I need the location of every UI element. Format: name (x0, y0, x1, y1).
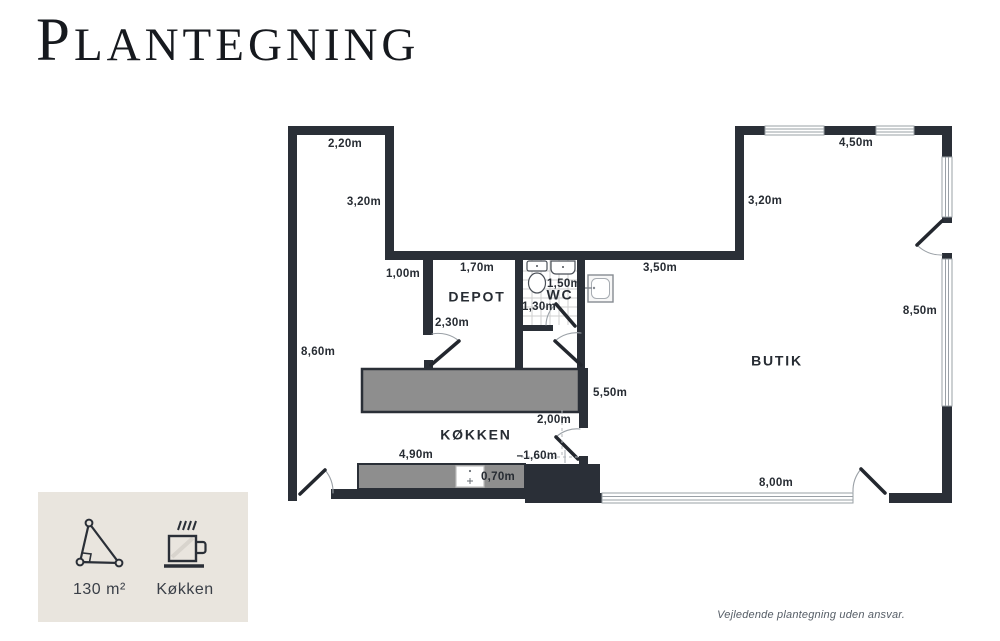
dimension-label: 4,50m (839, 137, 873, 149)
door-kitchen-butik (556, 429, 580, 459)
wall-left (288, 126, 297, 501)
doors (300, 221, 942, 494)
wall-depot-left (423, 260, 433, 335)
dimension-label: 5,50m (593, 387, 627, 399)
dimension-label: 2,20m (328, 138, 362, 150)
disclaimer-text: Vejledende plantegning uden ansvar. (717, 609, 905, 621)
dimension-label: 8,00m (759, 477, 793, 489)
window-bottom (602, 493, 853, 503)
room-label-wc: WC (547, 287, 574, 303)
door-butik-bottom (853, 469, 885, 493)
window-top-1 (765, 126, 824, 135)
wall-top-left (288, 126, 394, 135)
dimension-label: 8,50m (903, 305, 937, 317)
wc-sink-icon (551, 261, 575, 274)
door-kitchen-left (300, 470, 333, 494)
legend-kitchen: Køkken (156, 516, 213, 599)
wall-wc-bottom (515, 325, 553, 331)
dimension-label: 1,30m (522, 301, 556, 313)
wall-butik-upper-left (735, 126, 744, 260)
room-label-butik: BUTIK (751, 353, 803, 369)
legend-kitchen-label: Køkken (156, 581, 213, 599)
dimension-label: 3,20m (347, 196, 381, 208)
dimension-label: 0,70m (481, 471, 515, 483)
dimension-labels: 2,20m 3,20m 1,00m 1,70m 2,30m 1,50m 1,30… (301, 137, 937, 489)
legend-panel: 130 m² Køkken (38, 492, 248, 622)
dimension-label: 4,90m (399, 449, 433, 461)
dimension-label: 3,50m (643, 262, 677, 274)
toilet-icon (527, 261, 547, 293)
legend-area-value: 130 m² (73, 581, 126, 599)
basin-unit-icon (585, 275, 613, 302)
coffee-cup-icon (158, 516, 212, 572)
window-top-2 (876, 126, 914, 135)
room-label-depot: DEPOT (448, 289, 505, 305)
dimension-label: 1,00m (386, 268, 420, 280)
dimension-label: 2,30m (435, 317, 469, 329)
dimension-label: 1,70m (460, 262, 494, 274)
floor-plan-page: PLANTEGNING (0, 0, 1000, 641)
kitchen-counter-upper (362, 369, 579, 412)
wall-mid-horizontal (385, 251, 744, 260)
dimension-label: 3,20m (748, 195, 782, 207)
wall-divider (579, 368, 588, 428)
room-labels: DEPOT WC KØKKEN BUTIK (440, 287, 803, 443)
door-butik-right (917, 221, 942, 255)
dimension-label: 8,60m (301, 346, 335, 358)
wall-corner-mass (525, 464, 600, 503)
kitchen-sink (456, 466, 484, 487)
room-label-kokken: KØKKEN (440, 427, 511, 443)
wall-wc-left (515, 260, 523, 368)
window-right-1 (942, 157, 952, 217)
door-depot (431, 333, 459, 365)
wall-wc-right (577, 260, 585, 368)
dimension-label: –1,60m (517, 450, 558, 462)
window-right-2 (942, 259, 952, 406)
walls (288, 126, 952, 503)
area-triangle-icon (72, 516, 126, 572)
wall-left-room-right (385, 126, 394, 260)
legend-area: 130 m² (72, 516, 126, 599)
dimension-label: 2,00m (537, 414, 571, 426)
windows (602, 126, 952, 503)
